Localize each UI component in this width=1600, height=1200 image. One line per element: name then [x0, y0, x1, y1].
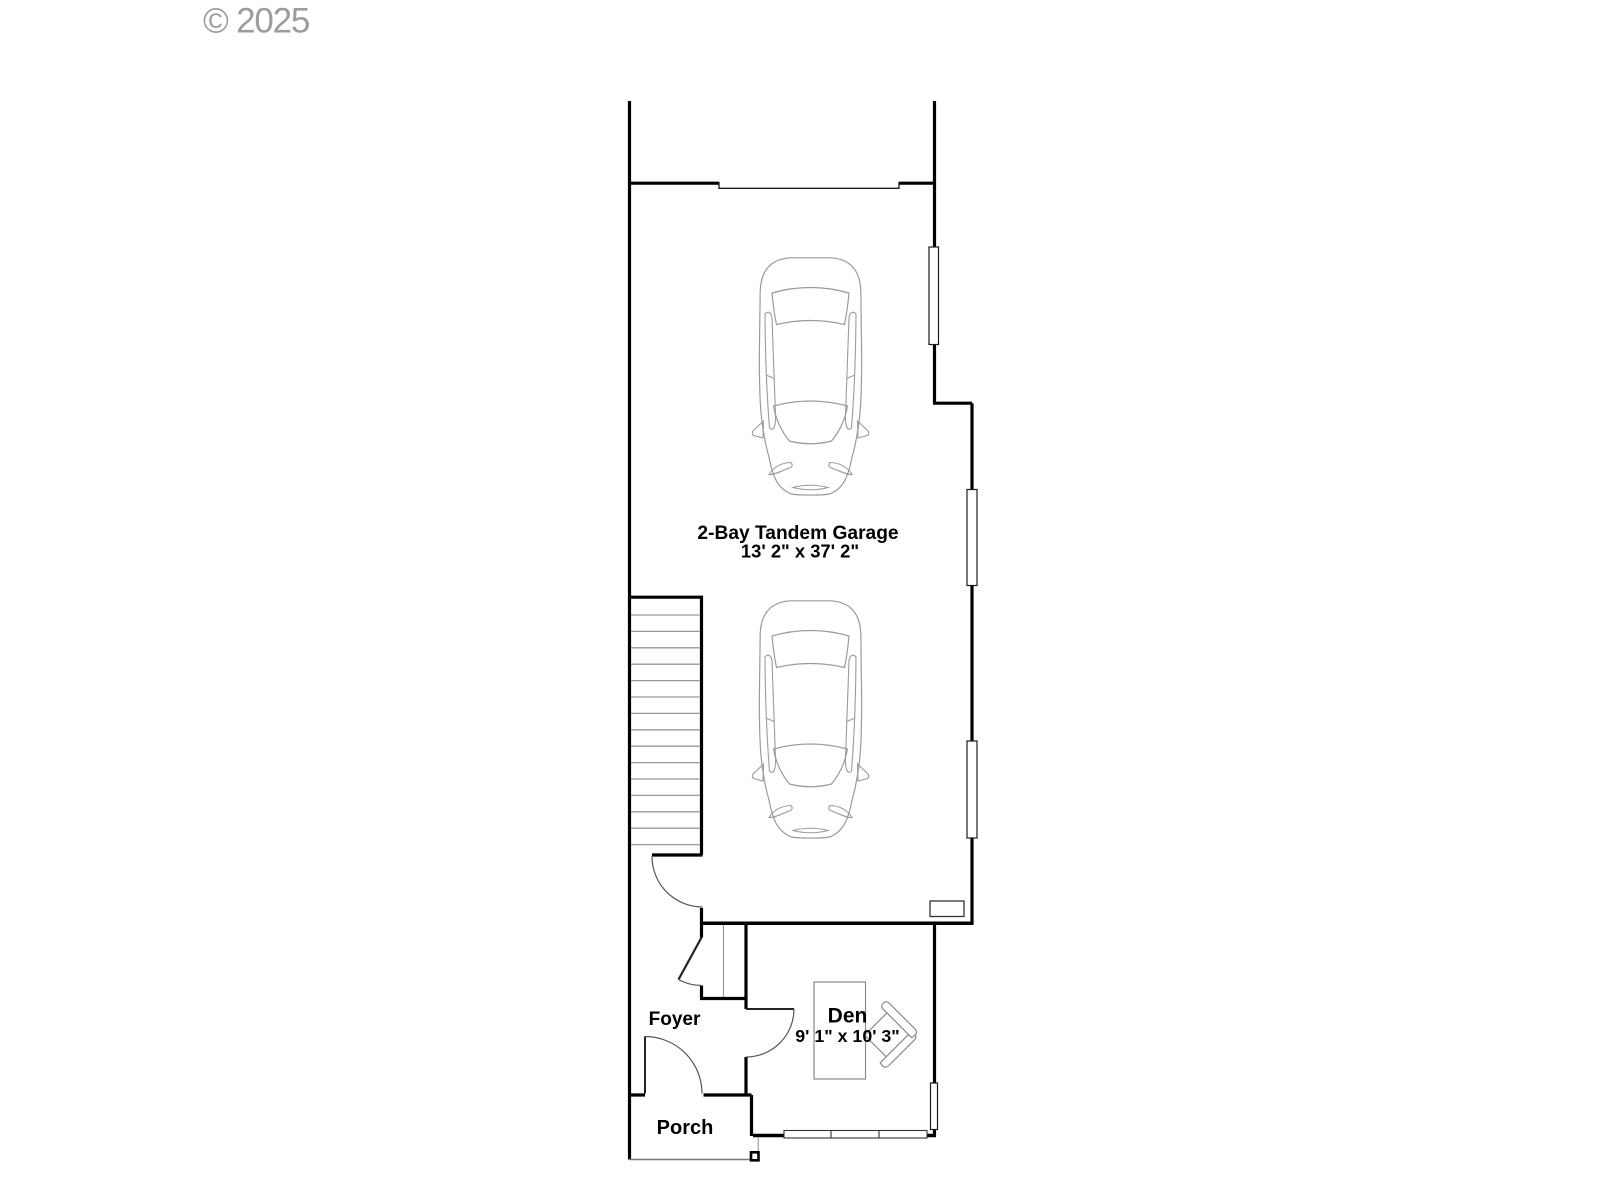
svg-text:Den: Den	[828, 1005, 868, 1028]
svg-text:Foyer: Foyer	[649, 1009, 701, 1030]
svg-text:9' 1" x 10' 3": 9' 1" x 10' 3"	[795, 1026, 899, 1046]
svg-text:Porch: Porch	[657, 1117, 714, 1139]
svg-text:© 2025: © 2025	[203, 2, 309, 41]
svg-text:13' 2" x 37' 2": 13' 2" x 37' 2"	[741, 541, 859, 562]
